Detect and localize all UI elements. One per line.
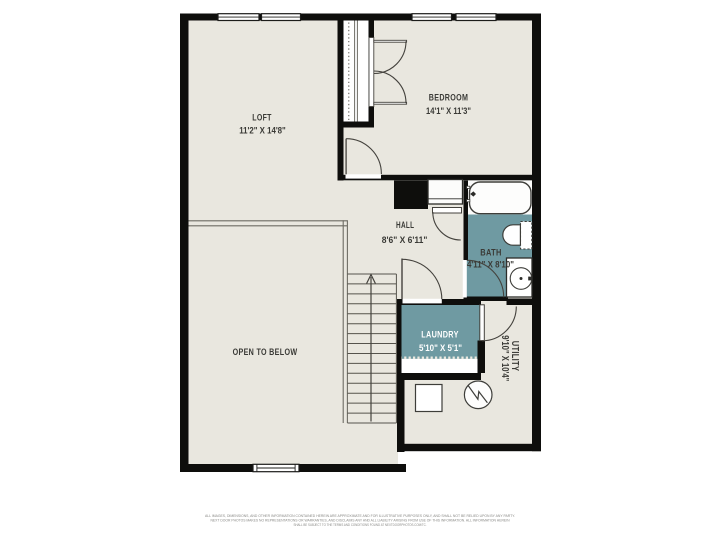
svg-text:OPEN TO BELOW: OPEN TO BELOW	[233, 347, 298, 357]
svg-text:SHALL BE SUBJECT TO THE TERMS: SHALL BE SUBJECT TO THE TERMS AND CONDIT…	[294, 522, 427, 527]
svg-text:BEDROOM: BEDROOM	[429, 93, 468, 103]
svg-text:LOFT: LOFT	[252, 112, 272, 122]
svg-text:9'10" X 10'4": 9'10" X 10'4"	[499, 335, 510, 381]
svg-text:HALL: HALL	[396, 220, 414, 230]
svg-text:BATH: BATH	[480, 248, 502, 258]
svg-text:14'1" X 11'3": 14'1" X 11'3"	[426, 106, 471, 116]
svg-text:4'11" X 8'10": 4'11" X 8'10"	[467, 260, 514, 270]
svg-text:11'2" X 14'8": 11'2" X 14'8"	[239, 126, 286, 136]
svg-text:LAUNDRY: LAUNDRY	[421, 330, 459, 340]
svg-text:5'10" X 5'1": 5'10" X 5'1"	[419, 343, 462, 353]
svg-text:8'6" X 6'11": 8'6" X 6'11"	[382, 235, 428, 245]
